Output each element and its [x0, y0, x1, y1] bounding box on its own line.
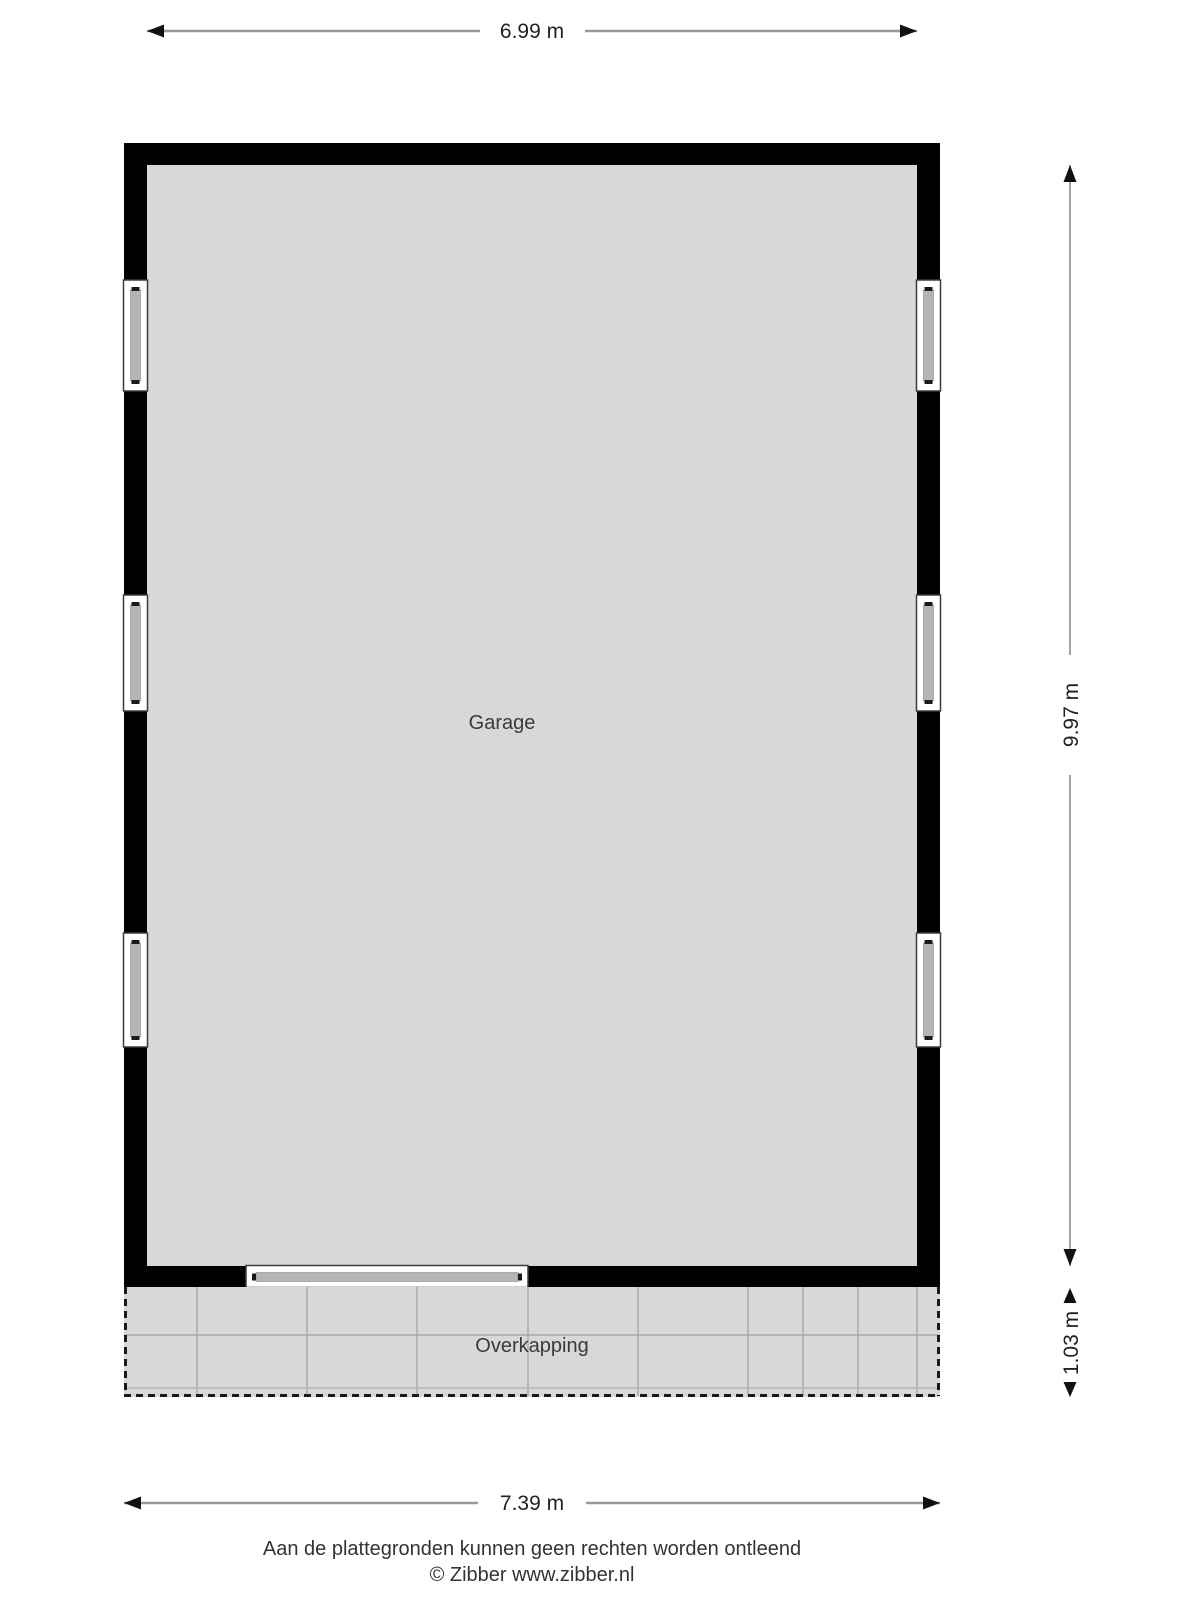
window-tick-icon	[925, 1036, 933, 1040]
window-tick-icon	[132, 287, 140, 291]
room-label-overkapping: Overkapping	[475, 1335, 588, 1357]
window-tick-icon	[132, 940, 140, 944]
dimension-top-width-label: 6.99 m	[500, 20, 564, 43]
room-label-garage: Garage	[469, 712, 536, 734]
window-tick-icon	[518, 1274, 522, 1281]
dimension-right-lower-height-label: 1.03 m	[1060, 1311, 1083, 1375]
window-tick-icon	[252, 1274, 256, 1281]
window-tick-icon	[925, 940, 933, 944]
footer-disclaimer: Aan de plattegronden kunnen geen rechten…	[263, 1538, 801, 1560]
window-tick-icon	[132, 700, 140, 704]
floorplan-page: 6.99 m	[0, 0, 1200, 1600]
footer-credit: © Zibber www.zibber.nl	[430, 1564, 635, 1586]
dimension-right-height-label: 9.97 m	[1060, 683, 1083, 747]
window-right-2	[917, 595, 941, 711]
dimension-bottom-width: 7.39 m	[124, 1492, 940, 1515]
arrow-left-icon	[147, 25, 164, 38]
window-left-2	[124, 595, 148, 711]
arrow-up-icon	[1064, 1288, 1077, 1303]
window-tick-icon	[132, 380, 140, 384]
window-tick-icon	[132, 602, 140, 606]
footer: Aan de plattegronden kunnen geen rechten…	[263, 1538, 801, 1586]
garage-room: Garage	[124, 143, 941, 1288]
overkapping-area: Overkapping	[124, 1287, 940, 1397]
window-tick-icon	[925, 380, 933, 384]
dimension-bottom-width-label: 7.39 m	[500, 1492, 564, 1515]
arrow-left-icon	[124, 1497, 141, 1510]
window-tick-icon	[925, 700, 933, 704]
dimension-right-lower-height: 1.03 m	[1060, 1288, 1083, 1397]
arrow-right-icon	[900, 25, 917, 38]
window-left-1	[124, 280, 148, 391]
dimension-right-height: 9.97 m	[1060, 165, 1083, 1266]
window-right-1	[917, 280, 941, 391]
window-tick-icon	[925, 602, 933, 606]
arrow-right-icon	[923, 1497, 940, 1510]
arrow-down-icon	[1064, 1249, 1077, 1266]
dimension-top-width: 6.99 m	[147, 20, 917, 43]
floorplan-canvas: 6.99 m	[0, 0, 1200, 1600]
window-right-3	[917, 933, 941, 1047]
window-tick-icon	[132, 1036, 140, 1040]
window-tick-icon	[925, 287, 933, 291]
arrow-up-icon	[1064, 165, 1077, 182]
arrow-down-icon	[1064, 1382, 1077, 1397]
window-left-3	[124, 933, 148, 1047]
window-bottom	[246, 1266, 528, 1288]
